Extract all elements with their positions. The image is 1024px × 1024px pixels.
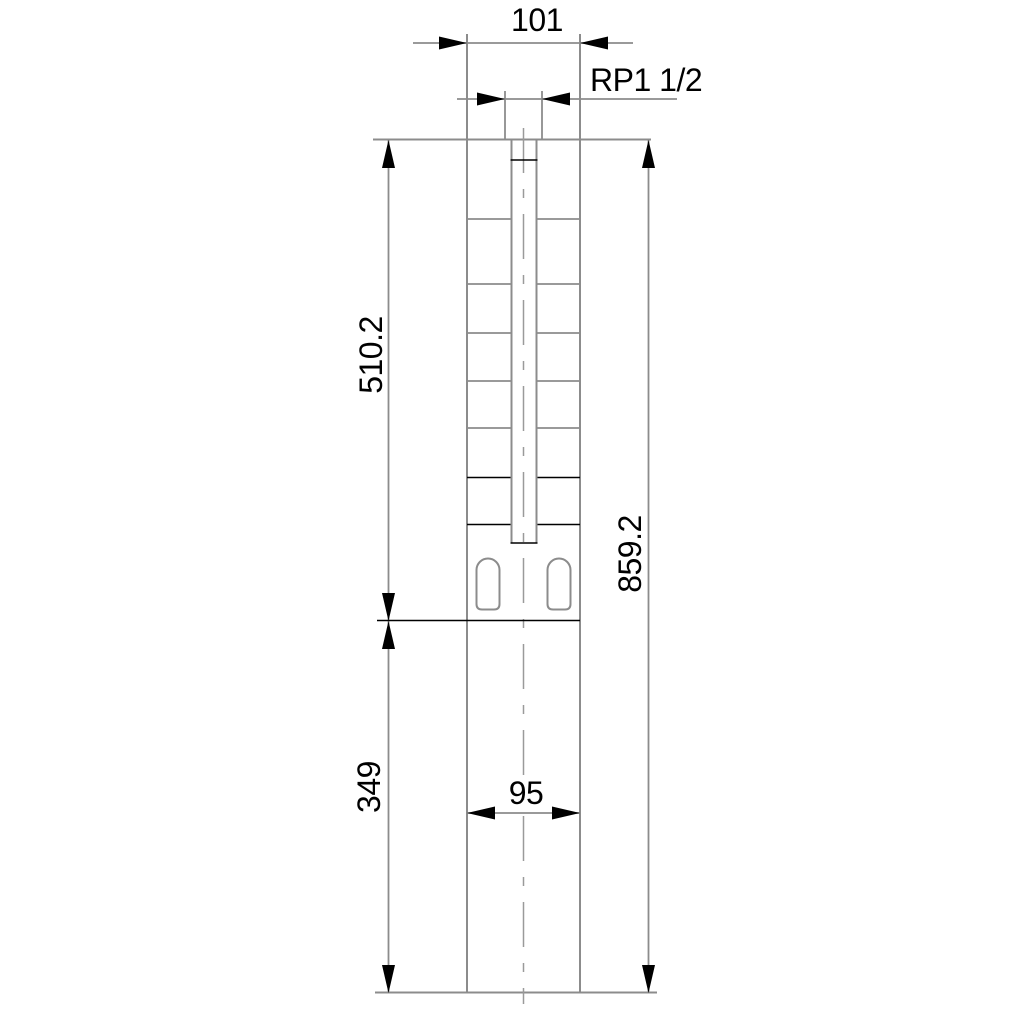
drawing-linework — [0, 0, 1024, 1024]
arrow-up-joint — [382, 621, 395, 649]
arrow-down-joint — [382, 593, 395, 621]
arrow-95-left — [467, 807, 495, 820]
arrow-thread-left — [477, 93, 505, 106]
intake-slot-right — [548, 559, 571, 610]
arrow-up-left-dim — [382, 140, 395, 168]
label-motor-section-length: 349 — [353, 761, 385, 813]
arrow-up-right-dim — [642, 140, 655, 168]
label-discharge-thread: RP1 1/2 — [590, 64, 702, 96]
intake-slot-left — [477, 559, 500, 610]
pump-dimensional-drawing: 101 RP1 1/2 510.2 859.2 349 95 — [0, 0, 1024, 1024]
dark-lines — [377, 160, 580, 621]
arrow-thread-right — [542, 93, 570, 106]
arrow-down-left-dim — [382, 965, 395, 993]
label-overall-length: 859.2 — [614, 515, 646, 593]
arrow-101-left — [439, 37, 467, 50]
arrow-down-right-dim — [642, 965, 655, 993]
label-top-width: 101 — [511, 4, 563, 36]
arrow-101-right — [580, 37, 608, 50]
label-motor-width: 95 — [509, 777, 544, 809]
arrow-95-right — [552, 807, 580, 820]
label-pump-section-length: 510.2 — [355, 316, 387, 394]
outline-and-dimension-lines — [373, 34, 677, 993]
